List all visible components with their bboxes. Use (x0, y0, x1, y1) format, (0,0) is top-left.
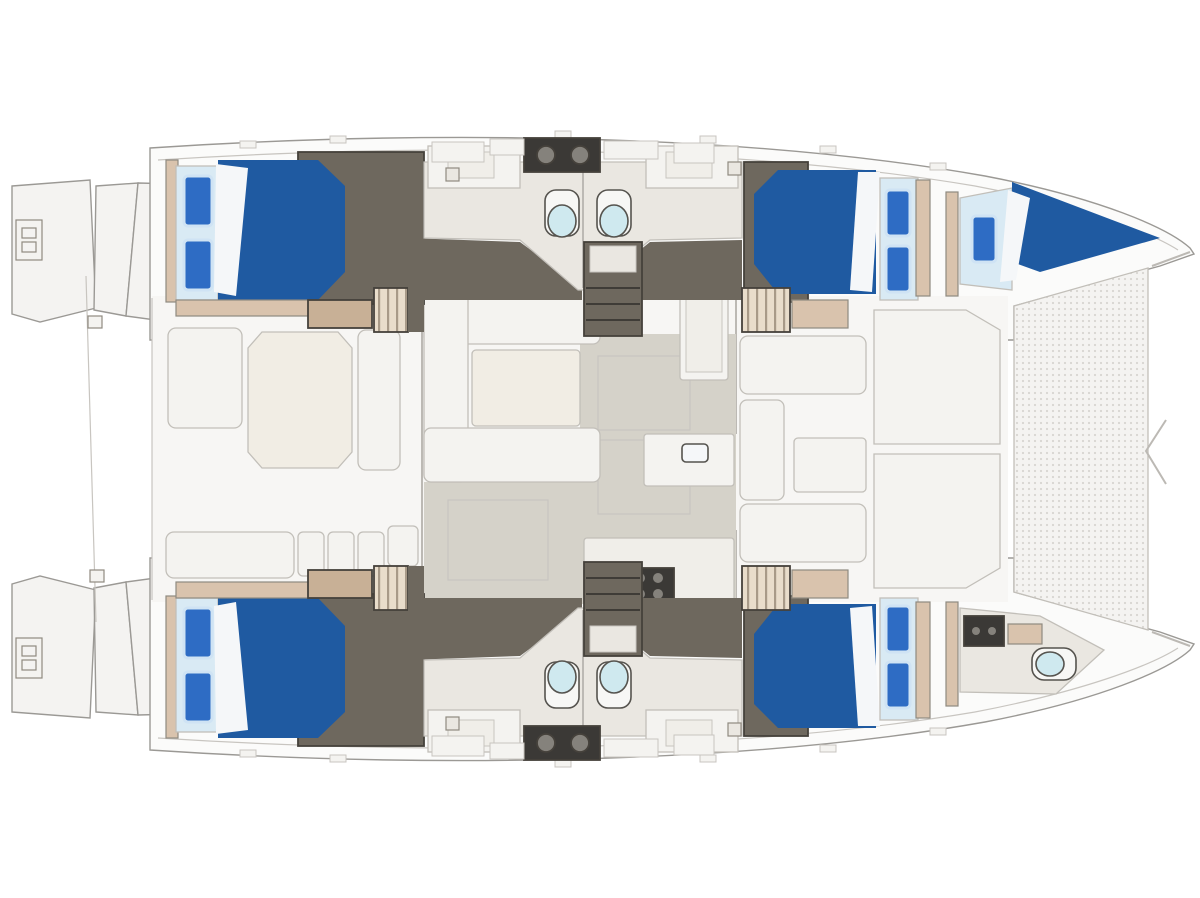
cabin-shelf (308, 570, 372, 598)
bed-pillow (184, 176, 212, 226)
companionway-stairs-starboard-aft (374, 566, 408, 610)
starboard-fwd-cabin (744, 596, 930, 736)
vanity-knob (972, 627, 980, 635)
bed-pillow (886, 606, 910, 652)
vanity-sink (537, 146, 555, 164)
stair-landing (590, 246, 636, 272)
deck-locker (432, 142, 484, 162)
deck-hatch (820, 745, 836, 752)
floor-hatch-icon (728, 723, 741, 736)
cockpit-helm-seat (388, 526, 418, 566)
vanity-sink (537, 734, 555, 752)
stern-cleat-starboard (90, 570, 104, 582)
fwd-cockpit-bench-top (740, 336, 866, 394)
deck-hatch (330, 755, 346, 762)
galley-island-top (686, 296, 722, 372)
swim-ladder-starboard (16, 638, 42, 678)
bed-pillow (886, 246, 910, 292)
bed-headboard (916, 602, 930, 718)
toilet-lid (600, 661, 628, 693)
deck-hatch (555, 760, 571, 767)
catamaran-floorplan (0, 0, 1200, 898)
companionway-stairs-port-fwd (742, 288, 790, 332)
bow-rim-lines (1152, 252, 1190, 646)
sun-pad-starboard (874, 454, 1000, 588)
stair-landing (590, 626, 636, 652)
deck-hatch (700, 136, 716, 143)
cockpit-seat-left (168, 328, 242, 428)
deck-locker (490, 139, 524, 155)
vanity-sink (571, 734, 589, 752)
cockpit-bench-aft (166, 532, 294, 578)
fwd-cockpit-bench-bottom (740, 504, 866, 562)
bed-pillow (886, 190, 910, 236)
toilet-lid (600, 205, 628, 237)
bed-pillow (184, 672, 212, 722)
galley-sink (682, 444, 708, 462)
deck-hatch (820, 146, 836, 153)
bed-headboard (916, 180, 930, 296)
salon (424, 288, 736, 604)
bed-pillow (184, 240, 212, 290)
toilet-lid (548, 661, 576, 693)
deck-hatch (700, 755, 716, 762)
salon-settee-bottom (424, 428, 600, 482)
deck-locker (490, 743, 524, 759)
toilet-lid (1036, 652, 1064, 676)
bow-bridle-chevron (1146, 420, 1166, 484)
swim-ladder-port-rung (22, 242, 36, 252)
stove-burner (653, 589, 663, 599)
cabin-wood-step (176, 582, 328, 598)
deck-hatch (240, 750, 256, 757)
bow-head-shelf (1008, 624, 1042, 644)
fwd-cockpit-seat-left (740, 400, 784, 500)
bed-pillow (972, 216, 996, 262)
deck-locker (674, 735, 714, 755)
vanity-sink (571, 146, 589, 164)
deck-locker (432, 736, 484, 756)
bow-trampoline (1014, 252, 1190, 646)
forepeak-bulkhead (946, 192, 958, 296)
companionway-stairs-starboard-fwd (742, 566, 790, 610)
deck-hatch (930, 163, 946, 170)
deck-hatch (240, 141, 256, 148)
swim-ladder-port (16, 220, 42, 260)
forward-cockpit (740, 336, 866, 562)
toilet-lid (548, 205, 576, 237)
deck-locker (604, 739, 658, 757)
bow-head-vanity (964, 616, 1004, 646)
trampoline-net (1014, 268, 1148, 630)
floor-hatch-icon (446, 717, 459, 730)
floor-hatch-icon (728, 162, 741, 175)
deck-locker (674, 143, 714, 163)
bed-pillow (886, 662, 910, 708)
deck-hatch (330, 136, 346, 143)
swim-ladder-starboard-rung (22, 660, 36, 670)
deck-hatch (930, 728, 946, 735)
swim-ladder-port-rung (22, 228, 36, 238)
deck-locker (604, 141, 658, 159)
deck-hatch (555, 131, 571, 138)
stern-cleat-port (88, 316, 102, 328)
cockpit-bench-right (358, 330, 400, 470)
cabin-shelf (308, 300, 372, 328)
stove-burner (653, 573, 663, 583)
forepeak-bulkhead (946, 602, 958, 706)
port-fwd-cabin (744, 162, 930, 302)
companionway-shelf (792, 570, 848, 598)
companionway-shelf (792, 300, 848, 328)
sun-pad-port (874, 310, 1000, 444)
floor-hatch-icon (446, 168, 459, 181)
cabin-wood-step (176, 300, 328, 316)
swim-ladder-starboard-rung (22, 646, 36, 656)
companionway-stairs-port-aft (374, 288, 408, 332)
floorplan-page (0, 0, 1200, 898)
vanity-knob (988, 627, 996, 635)
bed-pillow (184, 608, 212, 658)
salon-table (472, 350, 580, 426)
fwd-cockpit-table (794, 438, 866, 492)
cockpit-dining-table (248, 332, 352, 468)
